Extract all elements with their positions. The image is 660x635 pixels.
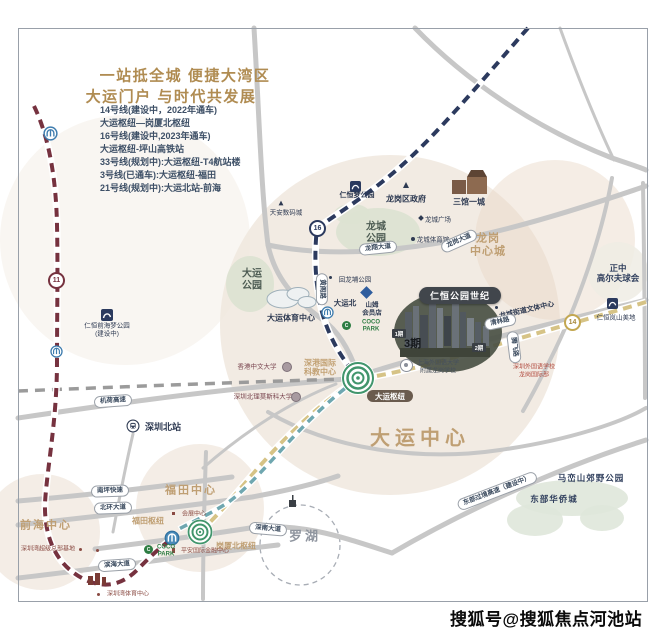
area-longgang-line2: 中心城 (470, 246, 506, 259)
area-skic-line1: 深港国际 (304, 358, 336, 367)
poi-qianhai-dream-status: (建设中) (95, 330, 119, 337)
legend-line-21: 21号线(规划中):大运北站-前海 (100, 181, 221, 194)
poi-longcheng-square: 龙城广场 (425, 216, 451, 223)
poi-coco-line2: PARK (158, 552, 175, 559)
metro-logo-icon-dayunbei (321, 306, 334, 324)
legend-line-33: 33号线(规划中):大运枢纽-T4航站楼 (100, 155, 241, 168)
szbay-sports-illustration (88, 573, 106, 585)
station-shenzhen-north: 深圳北站 (145, 422, 181, 432)
park-oct-east: 东部华侨城 (530, 495, 578, 505)
longcheng-gym-icon (411, 237, 415, 241)
area-luohu: 罗湖 (289, 530, 321, 545)
area-dayun-center: 大运中心 (370, 428, 470, 451)
poi-szbay-sports: 深圳湾体育中心 (107, 592, 149, 599)
project-phase3-label: 3期 (404, 335, 421, 351)
legend-line-14b: 大运枢纽—岗厦北枢纽 (100, 116, 190, 129)
hub-futian-label: 福田枢纽 (132, 516, 164, 525)
line-14-badge: 14 (564, 314, 581, 331)
poi-coco-line1: COCO (362, 320, 380, 327)
legend-line-16: 16号线(建设中,2023年通车) (100, 129, 211, 142)
poi-coco-line2: PARK (363, 327, 380, 334)
watermark: 搜狐号@搜狐焦点河池站 (450, 605, 642, 630)
poi-school-line2: 附属龙岗学校 (420, 369, 456, 376)
government-marker-icon (403, 182, 409, 188)
poi-longgang-government: 龙岗区政府 (386, 194, 426, 203)
area-qianhai-center: 前海中心 (20, 520, 72, 533)
area-skic-line2: 科教中心 (304, 367, 336, 376)
line-16-badge: 16 (309, 220, 326, 237)
poi-intl-school-line1: 深圳外国语学校 (513, 365, 555, 372)
tianan-marker-icon (279, 201, 284, 206)
poi-msu-bit: 深圳北理莫斯科大学 (234, 393, 293, 400)
poi-sam-line2: 会员店 (362, 309, 382, 316)
legend-line-14: 14号线(建设中，2022年通车) (100, 103, 217, 116)
school-logo-icon (400, 359, 413, 372)
coco-park-icon: C (144, 545, 153, 554)
metro-logo-icon (50, 345, 63, 363)
poi-lanshan: 仁恒岚山美地 (597, 314, 636, 321)
poi-three-halls: 三馆一城 (453, 197, 485, 206)
road-huangge: 黄阁路 (316, 273, 328, 305)
gangxiabei-hub-bullseye (187, 519, 213, 545)
poi-school-line1: 上海外国语大学 (417, 361, 459, 368)
area-futian-center: 福田中心 (165, 485, 217, 498)
park-dayun-line2: 公园 (242, 280, 262, 292)
poi-coco-line1: COCO (157, 545, 175, 552)
yanlord-logo-icon (607, 296, 618, 314)
poi-dayun-stadium: 大运体育中心 (267, 313, 315, 322)
road-beihuan: 北环大道 (94, 501, 132, 514)
msu-crest-icon (291, 392, 301, 402)
legend-line-16b: 大运枢纽-坪山高铁站 (100, 142, 184, 155)
area-longgang-line1: 龙岗 (476, 233, 500, 246)
legend-line-3: 3号线(已通车):大运枢纽-福田 (100, 168, 216, 181)
poi-intl-school-line2: 龙岗国际部 (519, 373, 549, 380)
park-longcheng-line1: 龙城 (366, 221, 386, 233)
park-huilongpu: 回龙埔公园 (339, 276, 372, 283)
poi-cuhk: 香港中文大学 (238, 363, 277, 370)
exhibition-icon (172, 512, 175, 515)
road-nanping: 南坪快速 (91, 484, 129, 497)
station-dayun-north: 大运北 (334, 300, 357, 309)
legend-title-line1: 一站抵全城 便捷大湾区 (100, 67, 271, 84)
poi-tianan: 天安数码城 (270, 209, 303, 216)
poi-zhengzhong-line2: 高尔夫球会 (597, 274, 640, 284)
project-name-badge: 仁恒公园世纪 (419, 287, 501, 304)
train-station-icon (126, 419, 140, 438)
huilongpu-icon (329, 276, 332, 279)
szbay-hq-dot-icon (96, 549, 99, 552)
luohu-building-icon (289, 495, 296, 507)
poi-qianhai-dream: 仁恒前海梦公园 (84, 322, 130, 329)
poi-renheng-dream-park: 仁恒梦公园 (340, 192, 375, 200)
park-maluanshan: 马峦山郊野公园 (558, 474, 625, 484)
coco-park-icon: C (342, 321, 351, 330)
poi-pingan: 平安国际金融中心 (181, 549, 229, 556)
szbay-hq-dot-icon (79, 548, 82, 551)
szbay-sports-dot-icon (97, 593, 100, 596)
poi-sam-line1: 山姆 (366, 301, 379, 308)
hub-dayun-label: 大运枢纽 (367, 390, 413, 402)
cuhk-crest-icon (282, 362, 292, 372)
line-11-badge: 11 (48, 272, 65, 289)
metro-logo-icon (43, 126, 58, 146)
map-page: 一站抵全城 便捷大湾区 大运门户 与时代共发展 14号线(建设中，2022年通车… (0, 0, 660, 635)
poi-exhibition: 会展中心 (182, 512, 206, 519)
project-phase2-badge: 2期 (472, 343, 486, 352)
park-dayun-line1: 大运 (242, 268, 262, 280)
poi-szbay-hq: 深圳湾超级总部基地 (21, 547, 75, 554)
wenti-center-icon (495, 306, 498, 309)
